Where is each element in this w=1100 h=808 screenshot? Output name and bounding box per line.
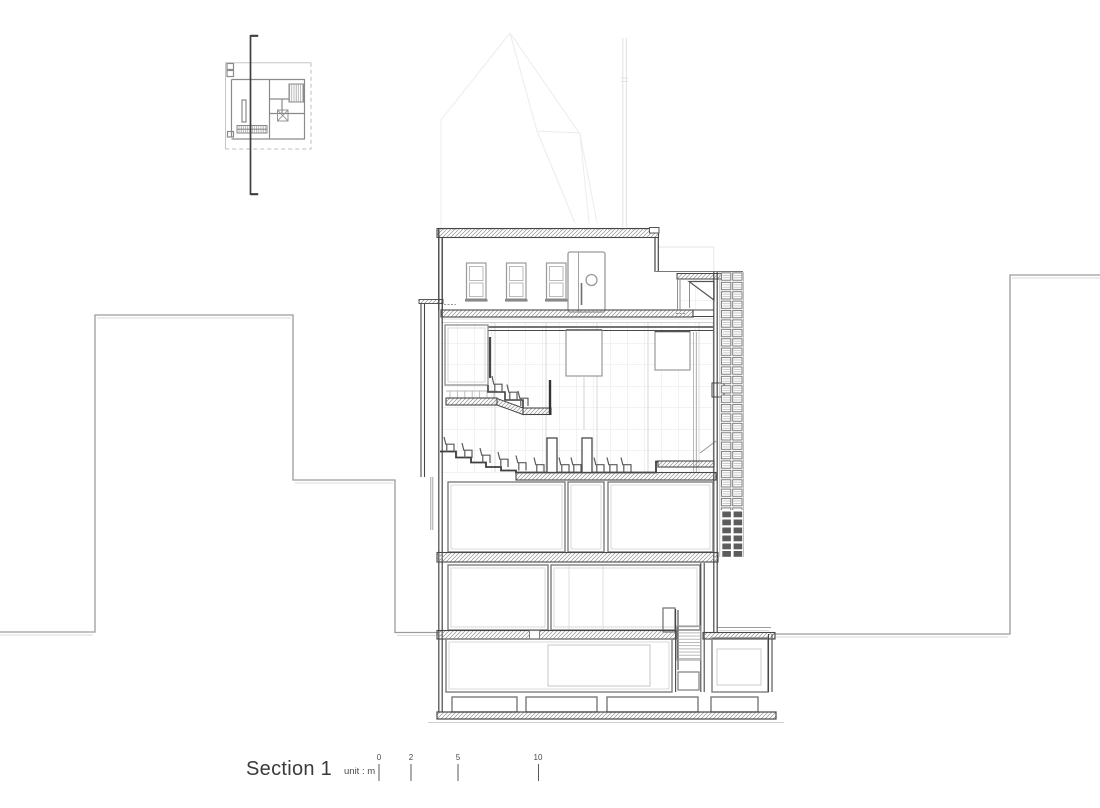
basement (446, 634, 772, 692)
flue-pipe (621, 38, 628, 227)
drawing-title: Section 1 (246, 758, 332, 781)
window-sills (465, 299, 568, 302)
first-floor (448, 563, 704, 692)
top-floor (439, 228, 659, 312)
key-plan-ramp (237, 126, 267, 134)
understair-room (678, 672, 699, 690)
neighbor-right-outline (717, 275, 1100, 637)
window (467, 263, 567, 299)
upper-floor-slab (441, 305, 714, 318)
roof-terrace-guardrail (658, 247, 714, 271)
scale-tick-label-5: 5 (456, 753, 460, 762)
basement-stage (548, 645, 650, 686)
window-panes (470, 267, 564, 297)
scale-tick-label-0: 0 (377, 753, 381, 762)
cut-column (582, 438, 592, 473)
stair-landing-block (663, 608, 675, 632)
bottom-slab (437, 712, 776, 719)
drawing-canvas: Section 1 unit : m 0 2 5 10 (0, 0, 1100, 808)
threshold-notch (530, 631, 540, 640)
scale-tick-label-2: 2 (409, 753, 413, 762)
scale-unit-label: unit : m (344, 766, 375, 777)
hanging-box-1 (566, 330, 602, 376)
roof-envelope-lines (441, 33, 597, 228)
key-plan-boundary-dashed (226, 63, 312, 149)
key-plan (226, 35, 312, 195)
scale-bar-ticks (379, 764, 539, 781)
neighbor-left-outline (0, 315, 439, 636)
second-floor (437, 482, 718, 562)
section-drawing (0, 0, 1100, 808)
foundation (428, 697, 784, 723)
section-cut-line (251, 35, 259, 195)
louver-closed-cells (722, 512, 742, 557)
scale-tick-label-10: 10 (534, 753, 543, 762)
cut-column (547, 438, 557, 473)
louver-facade (714, 272, 744, 633)
roof-slab (437, 228, 659, 238)
porthole-door (568, 252, 605, 312)
building-section (419, 228, 784, 723)
key-plan-boundary-solid (226, 63, 312, 149)
key-plan-stair (289, 84, 304, 102)
hanging-box-2 (655, 332, 690, 371)
key-plan-elevator (278, 110, 289, 121)
